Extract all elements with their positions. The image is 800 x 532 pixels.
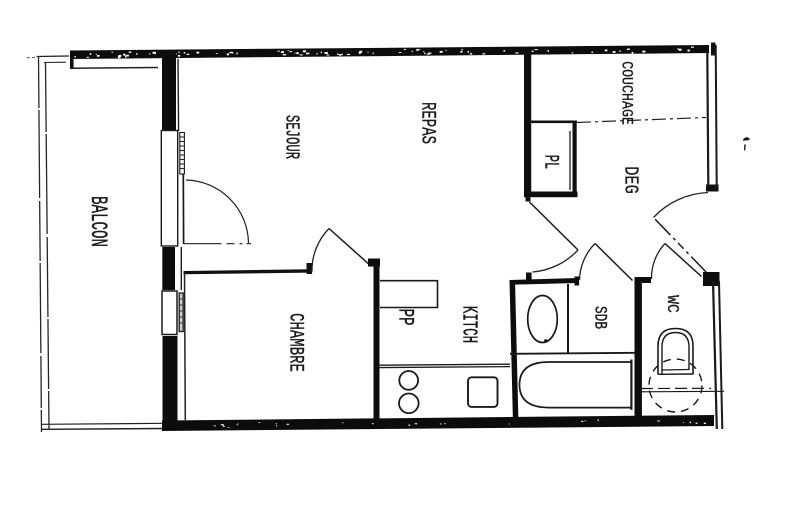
svg-text:DEG: DEG [619,166,640,194]
svg-text:SDB: SDB [590,306,610,329]
svg-text:BALCON: BALCON [85,196,111,247]
svg-text:WC: WC [663,295,682,313]
svg-text:PL: PL [539,155,562,169]
svg-text:CHAMBRE: CHAMBRE [284,313,307,372]
svg-text:SEJOUR: SEJOUR [281,115,302,160]
svg-text:REPAS: REPAS [416,102,438,144]
svg-text:COUCHAGE: COUCHAGE [617,61,634,125]
svg-text:PP: PP [392,308,417,325]
svg-text:KITCH: KITCH [456,306,479,343]
